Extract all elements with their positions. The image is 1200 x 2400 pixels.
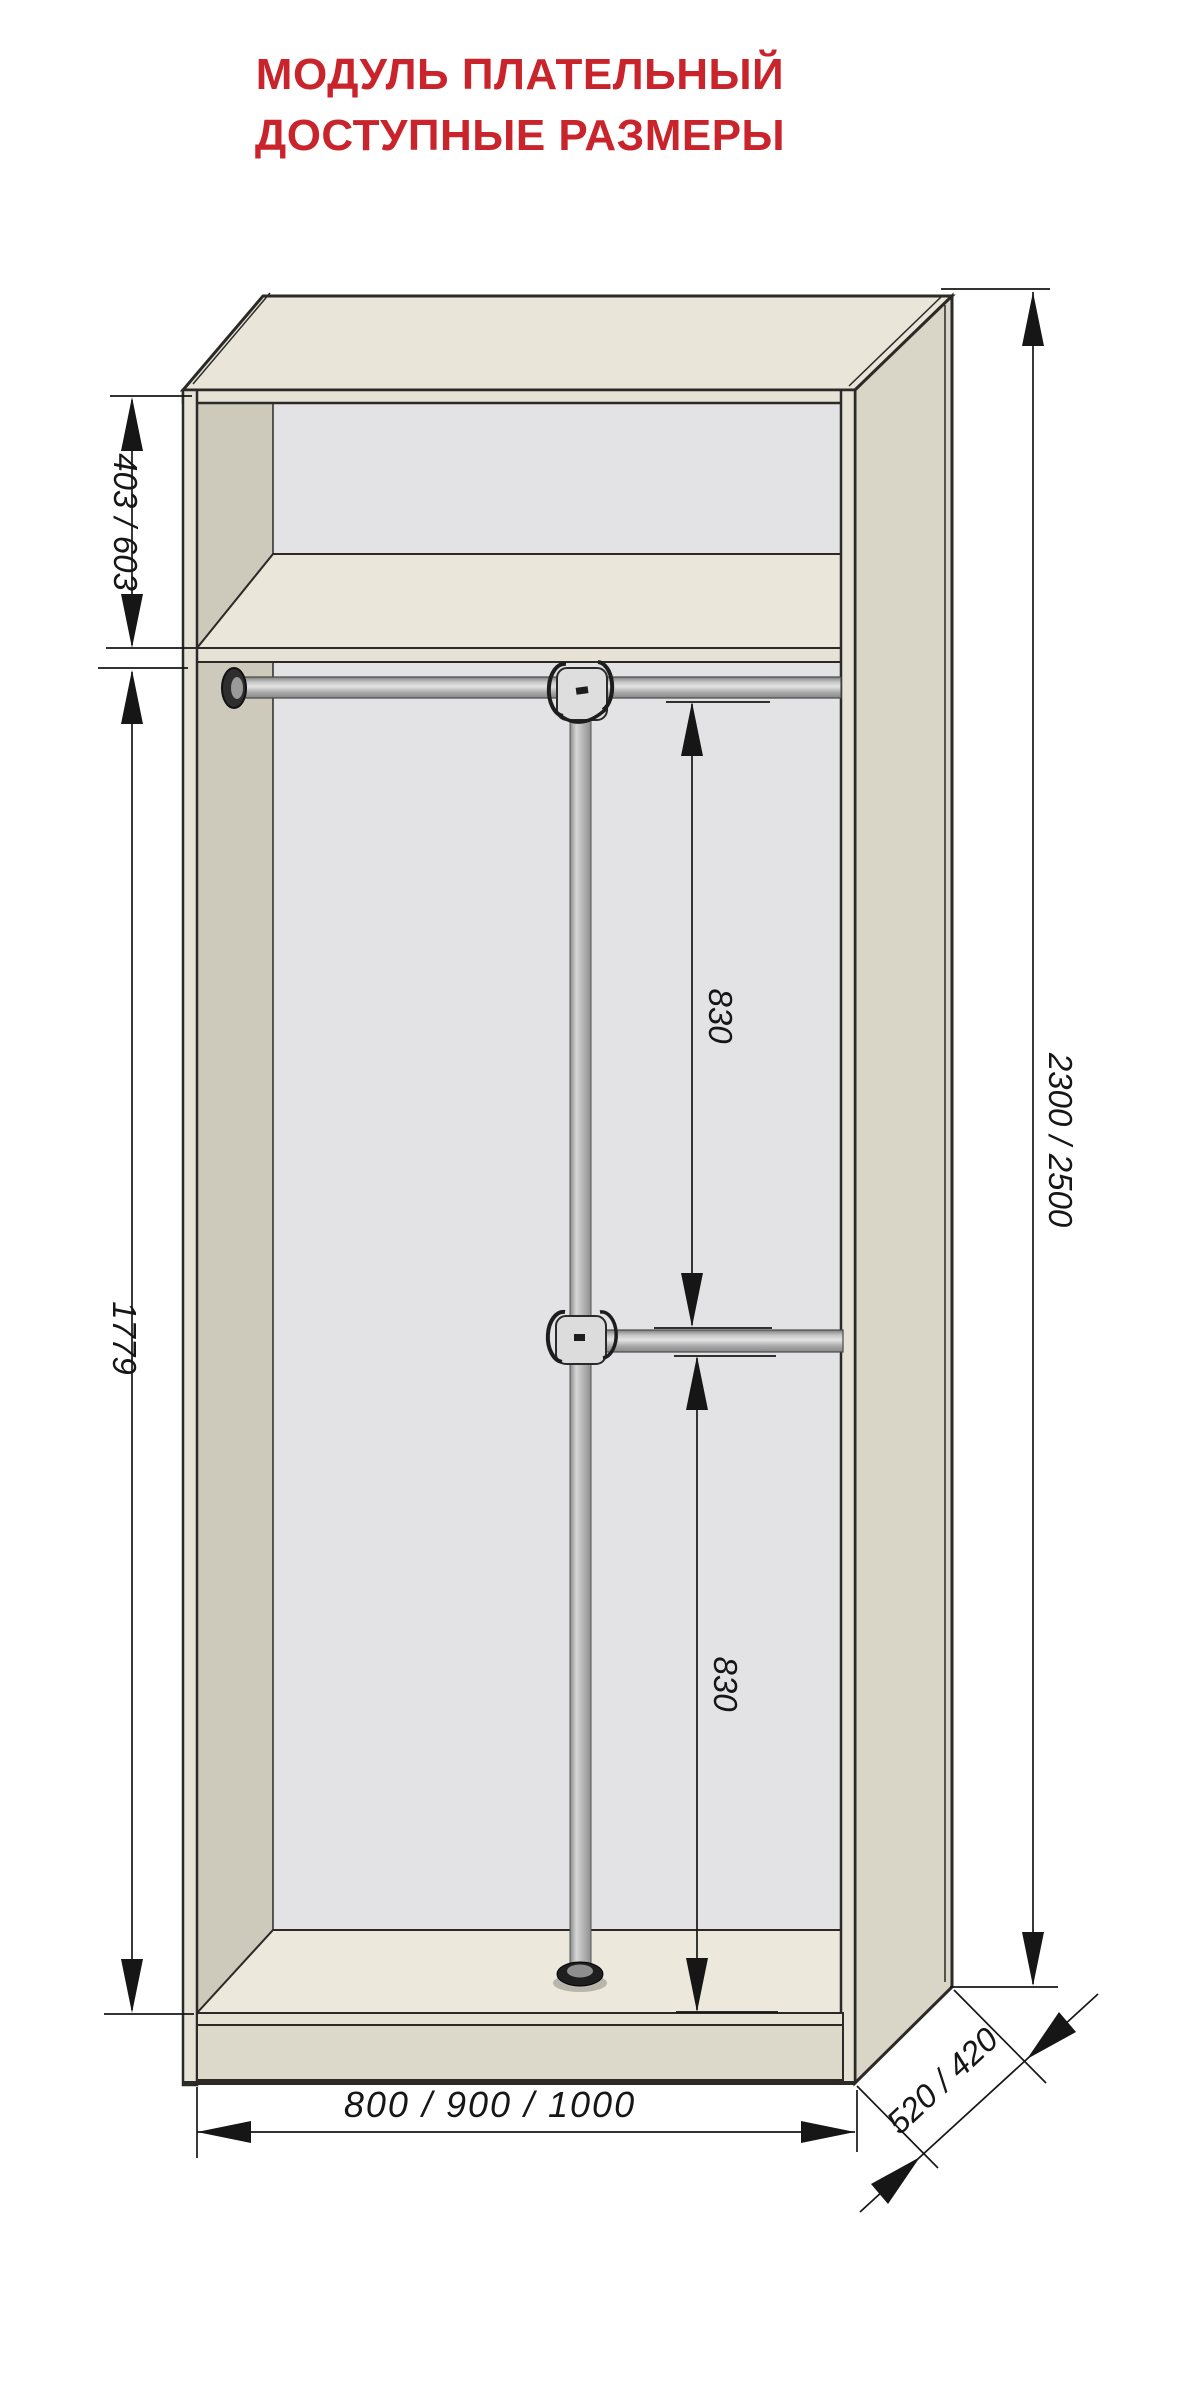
cabinet-top-panel bbox=[183, 296, 952, 390]
arrow-down-left-icon bbox=[1027, 2012, 1076, 2059]
arrow-left-icon bbox=[197, 2121, 251, 2143]
dim-overall-height: 2300 / 2500 bbox=[941, 289, 1079, 1987]
cabinet-body bbox=[183, 293, 952, 2085]
shelf-front-edge bbox=[197, 648, 843, 662]
arrow-up-icon bbox=[1022, 292, 1044, 346]
t-connector-lower-bolt bbox=[574, 1334, 585, 1341]
dim-label-top-section: 403 / 603 bbox=[107, 453, 144, 591]
rod-wall-flange-center bbox=[231, 677, 243, 699]
arrow-up-icon bbox=[121, 397, 143, 451]
bottom-panel-front-edge bbox=[197, 2013, 843, 2025]
left-wall-inner-lower bbox=[197, 662, 273, 2013]
arrow-down-icon bbox=[121, 1959, 143, 2013]
dim-label-lower-830: 830 bbox=[707, 1656, 744, 1712]
cabinet-right-side-panel bbox=[855, 296, 952, 2083]
dim-hanging-section-height: 1779 bbox=[98, 668, 194, 2014]
post-foot-cap bbox=[567, 1965, 593, 1978]
middle-hanging-rod bbox=[601, 1330, 843, 1352]
right-panel-front-edge bbox=[841, 390, 855, 2083]
arrow-right-icon bbox=[801, 2121, 855, 2143]
upper-hanging-rod bbox=[228, 677, 841, 698]
arrow-up-right-icon bbox=[871, 2157, 920, 2204]
dim-label-upper-830: 830 bbox=[702, 988, 739, 1044]
arrow-down-icon bbox=[1022, 1932, 1044, 1986]
plinth-front bbox=[197, 2025, 843, 2080]
dim-overall-width: 800 / 900 / 1000 bbox=[197, 2084, 857, 2158]
top-panel-front-edge bbox=[183, 390, 855, 403]
shelf-top-surface bbox=[197, 554, 920, 648]
dim-label-hanging-section: 1779 bbox=[106, 1301, 143, 1374]
dim-label-overall-width: 800 / 900 / 1000 bbox=[344, 2084, 636, 2125]
arrow-up-icon bbox=[121, 670, 143, 724]
arrow-down-icon bbox=[121, 594, 143, 648]
dim-label-overall-height: 2300 / 2500 bbox=[1042, 1052, 1079, 1228]
wardrobe-technical-drawing: 403 / 603 1779 830 830 bbox=[0, 0, 1200, 2400]
left-panel-front-edge bbox=[183, 390, 197, 2085]
